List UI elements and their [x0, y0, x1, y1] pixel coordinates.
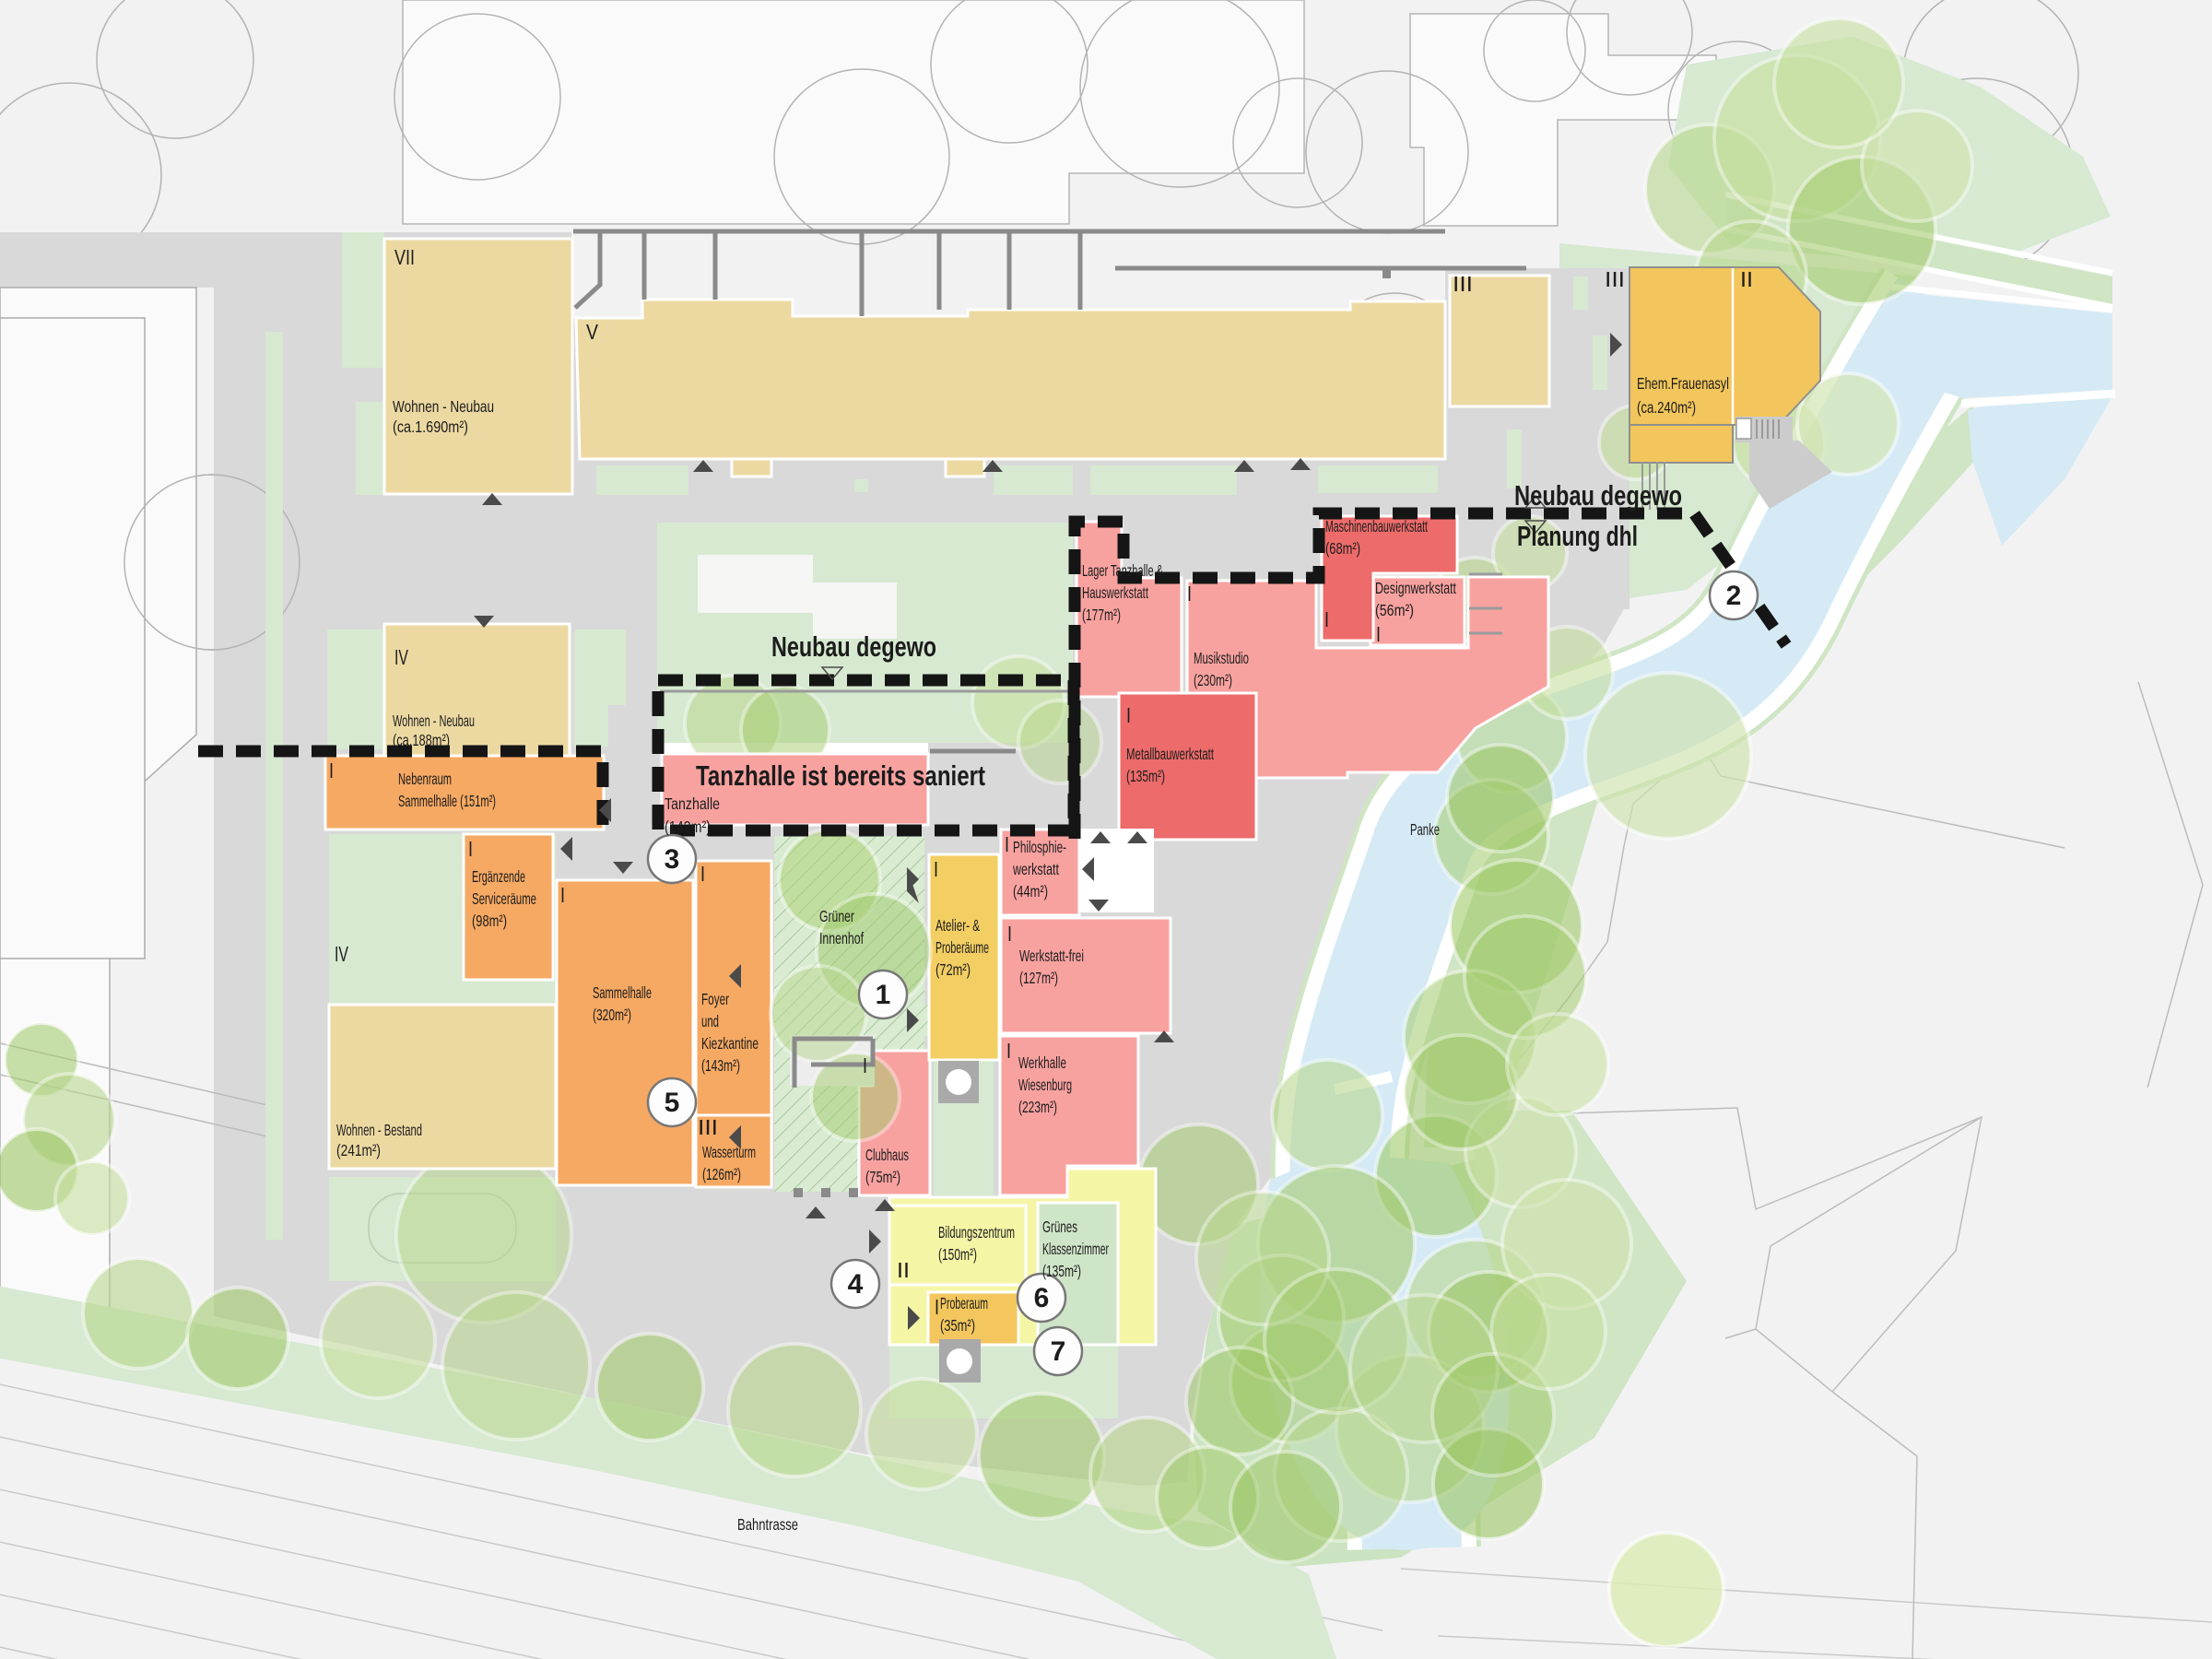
- svg-text:Wohnen - Neubau: Wohnen - Neubau: [393, 712, 475, 730]
- svg-text:Maschinenbauwerkstatt: Maschinenbauwerkstatt: [1325, 517, 1428, 535]
- svg-text:Sammelhalle (151m²): Sammelhalle (151m²): [398, 792, 496, 810]
- svg-text:(75m²): (75m²): [865, 1168, 900, 1186]
- svg-text:Bildungszentrum: Bildungszentrum: [938, 1223, 1015, 1241]
- svg-text:Bahntrasse: Bahntrasse: [737, 1515, 798, 1534]
- svg-text:I: I: [468, 837, 473, 861]
- svg-text:I: I: [1324, 607, 1329, 631]
- svg-text:1: 1: [876, 980, 891, 1010]
- svg-text:(68m²): (68m²): [1325, 539, 1360, 558]
- svg-text:IV: IV: [335, 942, 348, 966]
- svg-text:V: V: [586, 320, 599, 344]
- svg-text:(35m²): (35m²): [940, 1316, 975, 1335]
- svg-text:(241m²): (241m²): [336, 1141, 381, 1159]
- svg-text:I: I: [863, 1053, 867, 1077]
- svg-text:Wohnen - Neubau: Wohnen - Neubau: [393, 397, 494, 416]
- svg-text:I: I: [329, 759, 334, 782]
- svg-text:I: I: [700, 862, 705, 886]
- svg-text:I: I: [1187, 582, 1192, 606]
- svg-text:Designwerkstatt: Designwerkstatt: [1375, 579, 1456, 597]
- svg-text:Proberaum: Proberaum: [940, 1294, 988, 1312]
- svg-text:Lager Tanzhalle &: Lager Tanzhalle &: [1082, 561, 1163, 580]
- svg-text:Neubau degewo: Neubau degewo: [1514, 479, 1682, 512]
- svg-text:Werkstatt-frei: Werkstatt-frei: [1019, 947, 1084, 965]
- svg-text:Nebenraum: Nebenraum: [398, 770, 452, 788]
- svg-text:(44m²): (44m²): [1013, 882, 1048, 900]
- svg-text:Ehem.Frauenasyl: Ehem.Frauenasyl: [1637, 374, 1729, 393]
- svg-text:I: I: [1005, 832, 1009, 856]
- svg-text:(135m²): (135m²): [1126, 767, 1165, 785]
- svg-text:Wasserturm: Wasserturm: [702, 1143, 756, 1161]
- svg-text:III: III: [698, 1115, 718, 1139]
- svg-text:Proberäume: Proberäume: [935, 938, 989, 957]
- svg-text:(ca.188m²): (ca.188m²): [393, 731, 450, 749]
- svg-text:(135m²): (135m²): [1042, 1262, 1081, 1280]
- svg-text:Werkhalle: Werkhalle: [1018, 1053, 1066, 1072]
- svg-text:(223m²): (223m²): [1018, 1098, 1057, 1116]
- svg-text:VII: VII: [394, 245, 415, 269]
- svg-text:3: 3: [665, 844, 680, 875]
- svg-text:(320m²): (320m²): [593, 1006, 631, 1024]
- svg-text:Wiesenburg: Wiesenburg: [1018, 1076, 1072, 1094]
- svg-text:Serviceräume: Serviceräume: [472, 889, 536, 908]
- svg-text:5: 5: [665, 1088, 680, 1118]
- svg-text:(142m²): (142m²): [665, 818, 711, 836]
- svg-text:Sammelhalle: Sammelhalle: [593, 983, 652, 1002]
- svg-text:I: I: [934, 857, 938, 881]
- svg-text:(150m²): (150m²): [938, 1245, 977, 1264]
- svg-text:Foyer: Foyer: [701, 990, 729, 1008]
- svg-text:(127m²): (127m²): [1019, 969, 1058, 987]
- svg-text:(72m²): (72m²): [935, 960, 971, 979]
- svg-text:(143m²): (143m²): [701, 1056, 740, 1075]
- svg-text:Tanzhalle: Tanzhalle: [665, 794, 720, 813]
- svg-text:Wohnen - Bestand: Wohnen - Bestand: [336, 1121, 422, 1139]
- svg-text:Kiezkantine: Kiezkantine: [701, 1034, 759, 1053]
- svg-text:Philosphie-: Philosphie-: [1013, 838, 1066, 856]
- svg-text:Metallbauwerkstatt: Metallbauwerkstatt: [1126, 745, 1214, 763]
- svg-text:6: 6: [1034, 1283, 1050, 1313]
- svg-text:(ca.240m²): (ca.240m²): [1637, 398, 1696, 417]
- svg-text:Ergänzende: Ergänzende: [472, 867, 525, 886]
- svg-text:III: III: [1453, 272, 1473, 296]
- svg-text:IV: IV: [394, 645, 408, 669]
- svg-text:7: 7: [1051, 1336, 1066, 1367]
- svg-text:Planung dhl: Planung dhl: [1517, 520, 1638, 552]
- svg-text:(177m²): (177m²): [1082, 606, 1121, 624]
- svg-text:Tanzhalle ist bereits saniert: Tanzhalle ist bereits saniert: [696, 759, 985, 792]
- svg-text:Grünes: Grünes: [1042, 1218, 1077, 1236]
- svg-text:und: und: [701, 1012, 719, 1030]
- svg-text:Innenhof: Innenhof: [819, 929, 864, 947]
- svg-text:(ca.1.690m²): (ca.1.690m²): [393, 418, 468, 436]
- svg-text:I: I: [1006, 1039, 1011, 1063]
- svg-text:I: I: [935, 1295, 939, 1319]
- svg-text:Klassenzimmer: Klassenzimmer: [1042, 1240, 1109, 1258]
- svg-text:(56m²): (56m²): [1375, 601, 1414, 619]
- svg-text:Panke: Panke: [1410, 820, 1440, 839]
- svg-text:III: III: [1605, 267, 1625, 291]
- svg-text:Clubhaus: Clubhaus: [865, 1146, 909, 1164]
- svg-text:I: I: [560, 883, 565, 907]
- svg-text:(126m²): (126m²): [702, 1165, 741, 1183]
- svg-text:II: II: [897, 1258, 910, 1282]
- svg-text:4: 4: [848, 1269, 864, 1300]
- svg-text:2: 2: [1726, 581, 1742, 611]
- svg-text:I: I: [1007, 922, 1012, 946]
- svg-text:Atelier- &: Atelier- &: [935, 916, 980, 935]
- svg-text:Grüner: Grüner: [819, 907, 854, 925]
- svg-text:(98m²): (98m²): [472, 912, 507, 930]
- svg-text:I: I: [1376, 622, 1381, 646]
- svg-text:Musikstudio: Musikstudio: [1194, 649, 1249, 667]
- svg-text:II: II: [1740, 267, 1753, 291]
- svg-text:werkstatt: werkstatt: [1012, 860, 1059, 878]
- svg-text:Neubau degewo: Neubau degewo: [771, 630, 936, 663]
- svg-text:I: I: [1126, 703, 1131, 727]
- svg-text:(230m²): (230m²): [1194, 671, 1232, 689]
- svg-text:Hauswerkstatt: Hauswerkstatt: [1082, 583, 1148, 602]
